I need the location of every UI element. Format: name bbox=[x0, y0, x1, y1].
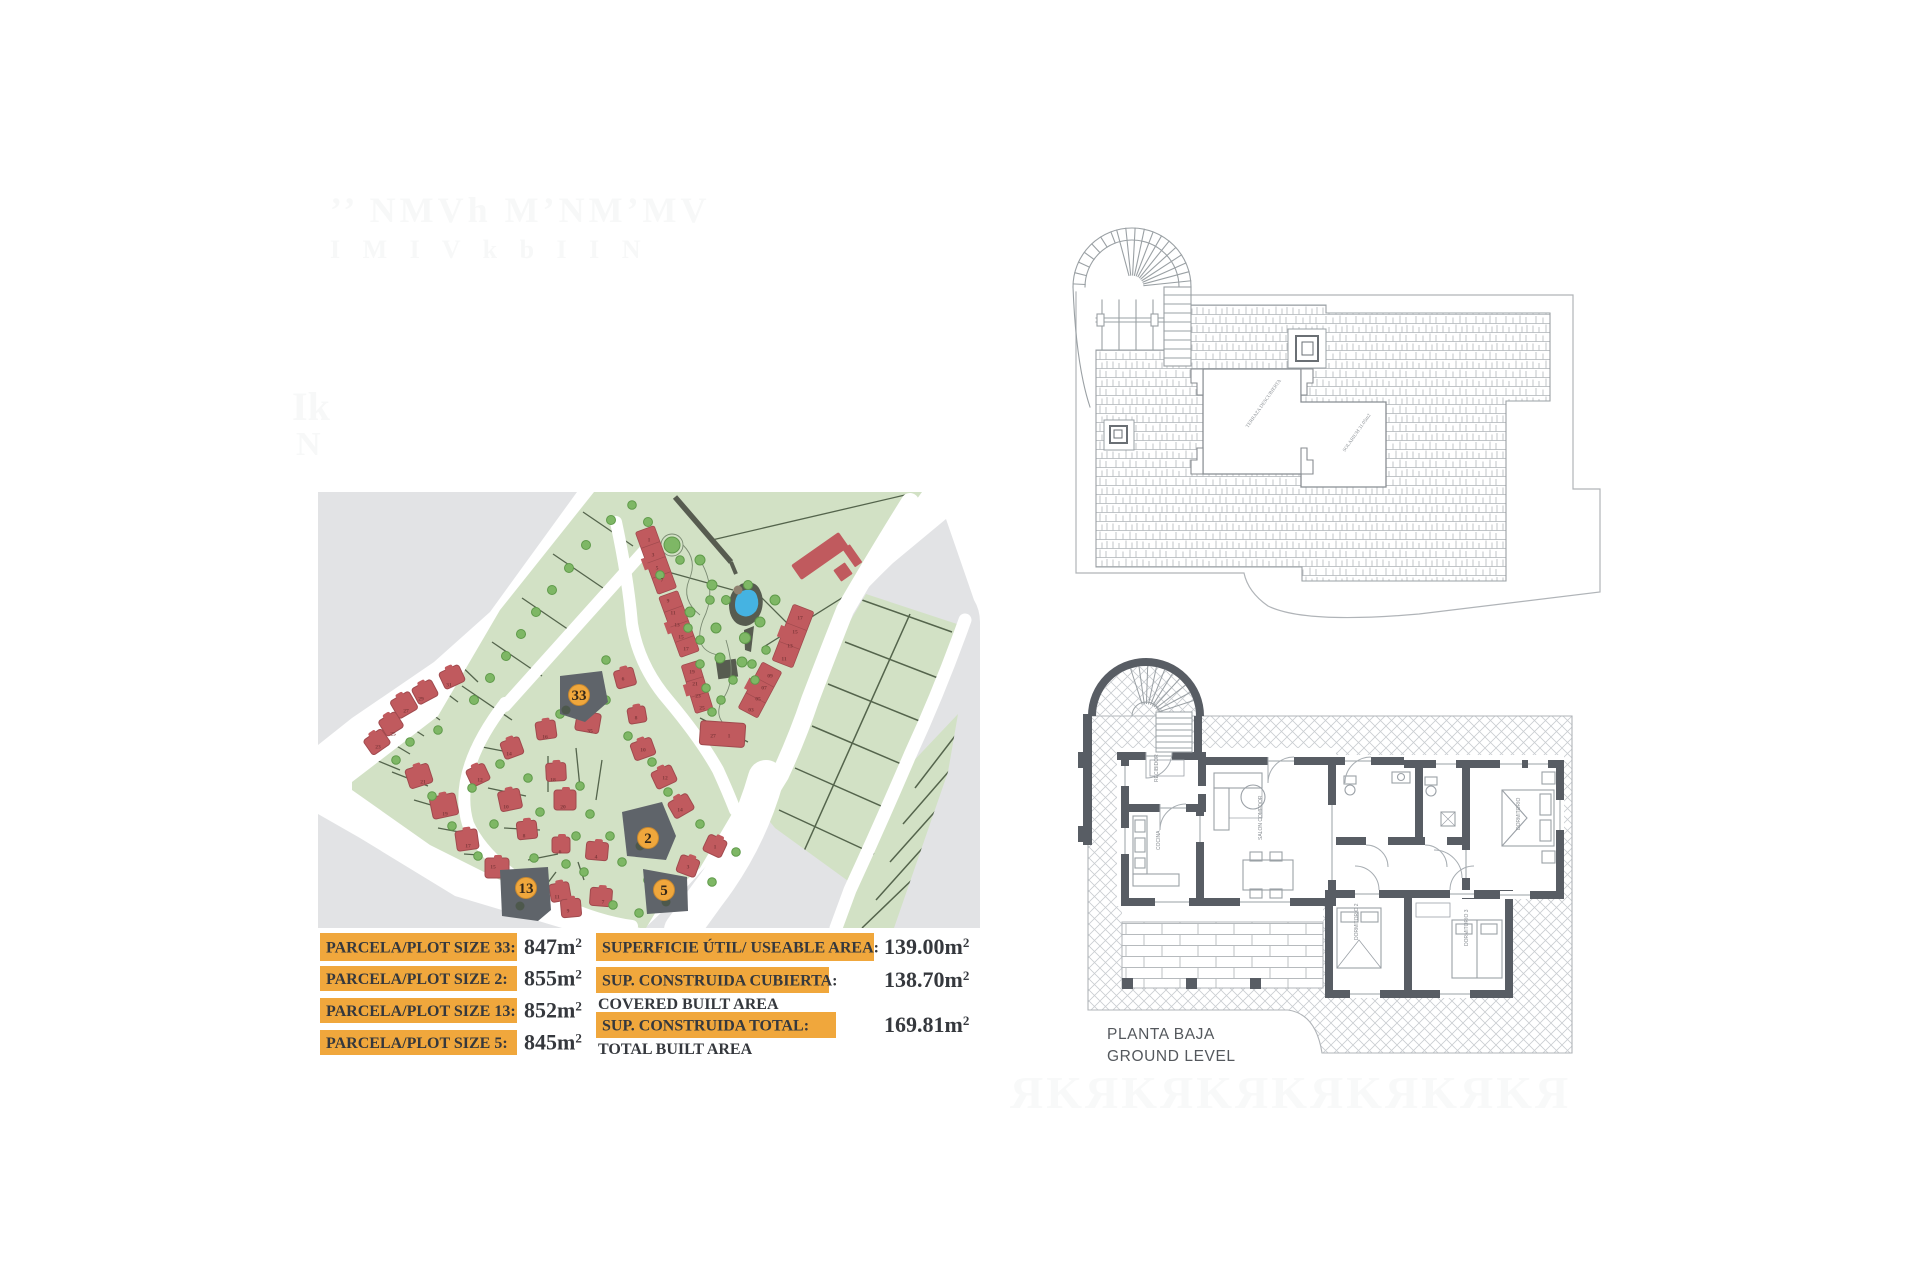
svg-text:847m2: 847m2 bbox=[524, 934, 582, 959]
svg-text:COVERED BUILT AREA: COVERED BUILT AREA bbox=[598, 996, 779, 1013]
svg-text:9: 9 bbox=[667, 599, 670, 605]
svg-text:27: 27 bbox=[403, 709, 409, 715]
svg-text:PARCELA/PLOT SIZE 2:: PARCELA/PLOT SIZE 2: bbox=[326, 971, 508, 988]
svg-text:2: 2 bbox=[644, 831, 652, 847]
svg-text:20: 20 bbox=[560, 805, 566, 811]
svg-text:18: 18 bbox=[550, 778, 556, 784]
svg-text:15: 15 bbox=[490, 865, 496, 871]
svg-text:PARCELA/PLOT SIZE 13:: PARCELA/PLOT SIZE 13: bbox=[326, 1003, 516, 1020]
svg-text:SALON COMEDOR: SALON COMEDOR bbox=[1258, 795, 1264, 840]
svg-text:35: 35 bbox=[587, 729, 593, 735]
svg-text:6: 6 bbox=[622, 677, 625, 683]
svg-text:1: 1 bbox=[648, 538, 651, 544]
svg-text:3: 3 bbox=[652, 553, 655, 559]
svg-text:17: 17 bbox=[797, 616, 803, 622]
svg-text:3: 3 bbox=[687, 865, 690, 871]
svg-text:05: 05 bbox=[755, 697, 761, 703]
svg-text:8: 8 bbox=[523, 834, 526, 840]
svg-text:SUP. CONSTRUIDA CUBIERTA:: SUP. CONSTRUIDA CUBIERTA: bbox=[602, 973, 837, 990]
svg-text:N: N bbox=[296, 426, 321, 463]
svg-text:11: 11 bbox=[781, 657, 786, 663]
svg-text:19: 19 bbox=[689, 670, 695, 676]
svg-text:I M I V k b I I N: I M I V k b I I N bbox=[330, 235, 649, 264]
svg-text:31: 31 bbox=[446, 683, 452, 689]
svg-text:8: 8 bbox=[635, 716, 638, 722]
svg-text:23: 23 bbox=[695, 694, 701, 700]
svg-text:03: 03 bbox=[748, 708, 754, 714]
svg-text:25: 25 bbox=[390, 732, 396, 738]
svg-text:10: 10 bbox=[503, 805, 509, 811]
svg-text:13: 13 bbox=[787, 644, 793, 650]
svg-text:15: 15 bbox=[792, 630, 798, 636]
svg-text:16: 16 bbox=[542, 735, 548, 741]
svg-text:33: 33 bbox=[572, 688, 587, 704]
svg-text:10: 10 bbox=[640, 748, 646, 754]
svg-text:PARCELA/PLOT SIZE 33:: PARCELA/PLOT SIZE 33: bbox=[326, 940, 516, 957]
svg-text:SUP. CONSTRUIDA TOTAL:: SUP. CONSTRUIDA TOTAL: bbox=[602, 1018, 809, 1035]
svg-text:4: 4 bbox=[595, 855, 598, 861]
svg-text:DORMITORIO: DORMITORIO bbox=[1516, 797, 1522, 830]
svg-text:138.70m2: 138.70m2 bbox=[884, 967, 969, 992]
svg-text:13: 13 bbox=[519, 881, 534, 897]
svg-text:29: 29 bbox=[418, 697, 424, 703]
svg-text:12: 12 bbox=[477, 778, 483, 784]
svg-text:PARCELA/PLOT SIZE 5:: PARCELA/PLOT SIZE 5: bbox=[326, 1035, 508, 1052]
svg-text:DORMITORIO 3: DORMITORIO 3 bbox=[1464, 909, 1470, 946]
svg-text:14: 14 bbox=[506, 752, 512, 758]
svg-text:SUPERFICIE ÚTIL/ USEABLE AREA:: SUPERFICIE ÚTIL/ USEABLE AREA: bbox=[602, 938, 879, 957]
svg-text:139.00m2: 139.00m2 bbox=[884, 934, 969, 959]
svg-text:5: 5 bbox=[660, 883, 668, 899]
svg-text:5: 5 bbox=[656, 566, 659, 572]
svg-text:09: 09 bbox=[767, 674, 773, 680]
svg-text:7: 7 bbox=[661, 578, 664, 584]
svg-text:25: 25 bbox=[699, 706, 705, 712]
svg-text:17: 17 bbox=[465, 844, 471, 850]
svg-text:RECIBIDOR: RECIBIDOR bbox=[1154, 754, 1160, 782]
svg-text:855m2: 855m2 bbox=[524, 966, 582, 991]
svg-text:11: 11 bbox=[554, 895, 559, 901]
svg-text:6: 6 bbox=[559, 850, 562, 856]
svg-text:19: 19 bbox=[442, 812, 448, 818]
svg-text:11: 11 bbox=[670, 611, 675, 617]
svg-text:9: 9 bbox=[567, 909, 570, 915]
svg-text:1: 1 bbox=[714, 845, 717, 851]
svg-text:GROUND LEVEL: GROUND LEVEL bbox=[1107, 1048, 1236, 1065]
svg-text:ЯKЯKЯKЯKЯKЯKЯKЯ: ЯKЯKЯKЯKЯKЯKЯKЯ bbox=[1010, 1067, 1571, 1118]
svg-text:COCINA: COCINA bbox=[1156, 830, 1162, 850]
svg-text:1: 1 bbox=[728, 734, 731, 740]
svg-text:169.81m2: 169.81m2 bbox=[884, 1012, 969, 1037]
svg-text:17: 17 bbox=[683, 647, 689, 653]
svg-text:852m2: 852m2 bbox=[524, 998, 582, 1023]
svg-text:21: 21 bbox=[420, 780, 426, 786]
svg-text:14: 14 bbox=[677, 808, 683, 814]
svg-text:21: 21 bbox=[692, 682, 698, 688]
svg-text:27: 27 bbox=[710, 734, 716, 740]
svg-text:13: 13 bbox=[674, 623, 680, 629]
svg-text:7: 7 bbox=[602, 900, 605, 906]
svg-text:’’ NMVh M’NM’MV: ’’ NMVh M’NM’MV bbox=[330, 190, 711, 230]
svg-text:23: 23 bbox=[375, 745, 381, 751]
svg-text:07: 07 bbox=[761, 686, 767, 692]
svg-text:PLANTA BAJA: PLANTA BAJA bbox=[1107, 1026, 1215, 1043]
svg-text:845m2: 845m2 bbox=[524, 1030, 582, 1055]
svg-text:Ik: Ik bbox=[292, 384, 331, 429]
svg-text:12: 12 bbox=[662, 776, 668, 782]
svg-text:TOTAL BUILT AREA: TOTAL BUILT AREA bbox=[598, 1041, 753, 1058]
svg-text:DORMITORIO 2: DORMITORIO 2 bbox=[1354, 903, 1360, 940]
svg-text:15: 15 bbox=[678, 635, 684, 641]
